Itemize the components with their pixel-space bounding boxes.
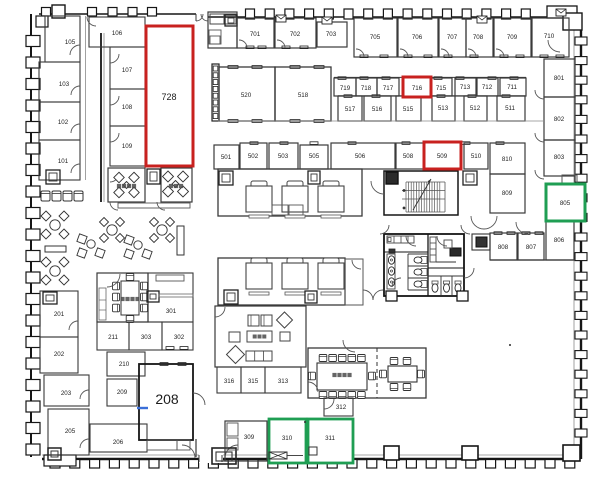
svg-text:702: 702: [290, 31, 301, 38]
svg-text:719: 719: [340, 85, 351, 92]
svg-text:210: 210: [119, 361, 130, 368]
svg-text:708: 708: [473, 34, 484, 41]
svg-text:806: 806: [554, 237, 565, 244]
svg-text:313: 313: [278, 378, 289, 385]
svg-text:520: 520: [241, 92, 252, 99]
svg-text:301: 301: [166, 308, 177, 315]
svg-text:506: 506: [355, 153, 366, 160]
svg-text:107: 107: [122, 67, 133, 74]
svg-text:801: 801: [554, 75, 565, 82]
svg-text:103: 103: [59, 81, 70, 88]
svg-text:517: 517: [345, 106, 356, 113]
svg-text:701: 701: [250, 31, 261, 38]
svg-text:109: 109: [122, 143, 133, 150]
svg-text:711: 711: [507, 84, 517, 91]
svg-text:512: 512: [470, 105, 481, 112]
svg-text:309: 309: [244, 434, 255, 441]
svg-text:303: 303: [141, 334, 152, 341]
svg-text:712: 712: [482, 84, 493, 91]
svg-text:706: 706: [412, 34, 423, 41]
svg-text:502: 502: [248, 153, 259, 160]
svg-text:205: 205: [65, 428, 76, 435]
svg-text:312: 312: [336, 404, 347, 411]
svg-text:208: 208: [155, 391, 179, 407]
svg-text:310: 310: [282, 435, 293, 442]
svg-text:717: 717: [383, 85, 394, 92]
svg-text:715: 715: [436, 85, 447, 92]
svg-text:728: 728: [161, 92, 176, 102]
svg-text:501: 501: [221, 154, 232, 161]
svg-text:707: 707: [447, 34, 458, 41]
svg-text:718: 718: [361, 85, 372, 92]
svg-text:716: 716: [412, 85, 423, 92]
svg-text:315: 315: [248, 378, 259, 385]
svg-text:105: 105: [65, 39, 76, 46]
svg-text:509: 509: [437, 153, 448, 160]
svg-text:803: 803: [554, 154, 565, 161]
svg-text:201: 201: [54, 311, 65, 318]
svg-text:503: 503: [278, 153, 289, 160]
svg-text:518: 518: [298, 92, 309, 99]
svg-text:809: 809: [502, 190, 513, 197]
svg-text:511: 511: [505, 105, 515, 112]
svg-text:206: 206: [113, 439, 124, 446]
svg-text:202: 202: [54, 351, 65, 358]
svg-text:513: 513: [438, 105, 449, 112]
svg-text:209: 209: [117, 389, 128, 396]
svg-text:510: 510: [471, 153, 482, 160]
svg-text:710: 710: [544, 33, 555, 40]
svg-text:211: 211: [108, 334, 118, 341]
svg-text:101: 101: [58, 158, 69, 165]
svg-text:709: 709: [507, 34, 518, 41]
svg-text:106: 106: [112, 30, 123, 37]
svg-text:515: 515: [403, 106, 414, 113]
svg-text:805: 805: [560, 200, 571, 207]
svg-text:713: 713: [460, 84, 471, 91]
svg-text:302: 302: [174, 334, 185, 341]
svg-text:505: 505: [309, 153, 320, 160]
svg-text:102: 102: [58, 119, 69, 126]
svg-text:316: 316: [224, 378, 235, 385]
svg-text:705: 705: [370, 34, 381, 41]
svg-text:108: 108: [122, 104, 133, 111]
svg-text:516: 516: [372, 106, 383, 113]
svg-text:203: 203: [61, 390, 72, 397]
svg-text:508: 508: [403, 153, 414, 160]
svg-text:703: 703: [326, 31, 337, 38]
svg-text:802: 802: [554, 116, 565, 123]
svg-text:807: 807: [526, 244, 537, 251]
svg-text:808: 808: [498, 244, 509, 251]
svg-text:311: 311: [325, 435, 335, 442]
svg-text:810: 810: [502, 156, 513, 163]
